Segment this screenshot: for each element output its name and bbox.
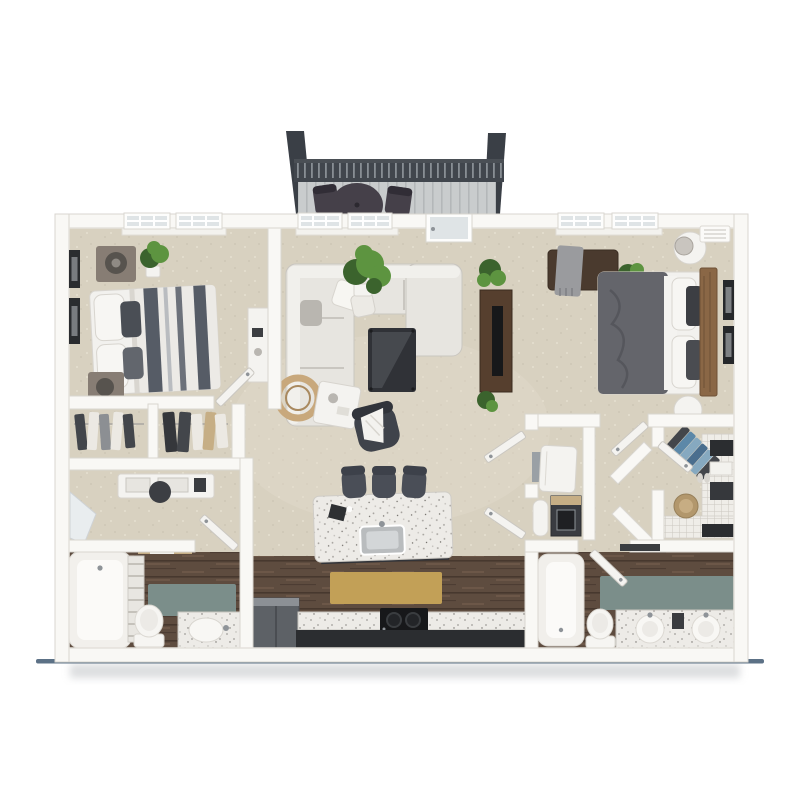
bed-dark (598, 268, 717, 396)
storage-cylinder (533, 500, 548, 536)
runner-rug (330, 572, 442, 604)
kitchen-island (313, 492, 453, 565)
folded-towels (710, 462, 732, 475)
side-table (313, 381, 362, 430)
vanity-decor (672, 613, 684, 629)
table-lamp (675, 237, 693, 255)
table-lamp (96, 378, 114, 396)
coffee-table (368, 328, 416, 392)
bathtub (69, 552, 131, 648)
bar-stool (401, 465, 427, 499)
base-cabinets (296, 630, 532, 648)
floor-plan-image (0, 0, 800, 800)
floor-plan-svg (0, 0, 800, 800)
closet-hanging-clothes (162, 412, 228, 453)
toilet (134, 605, 164, 647)
storage-box (551, 496, 581, 536)
shoes (697, 473, 703, 483)
vanity-sink (178, 612, 240, 648)
teal-rug (148, 584, 236, 616)
balcony-chair-left (312, 183, 340, 215)
media-console (480, 290, 512, 392)
storage-bin (710, 440, 734, 456)
throw-pillow (300, 300, 322, 326)
bathtub (538, 554, 584, 646)
range-cooktop (380, 608, 428, 632)
water-heater (539, 445, 577, 493)
double-vanity (616, 610, 734, 648)
ac-vent (700, 226, 730, 242)
wood-headboard (700, 268, 717, 396)
drop-shadow (70, 664, 740, 678)
refrigerator (253, 598, 299, 648)
balcony-glass-door (426, 214, 472, 242)
storage-bin (710, 482, 734, 500)
round-stool (149, 481, 171, 503)
accent-pillow (122, 347, 144, 380)
bar-stool (372, 466, 396, 498)
toilet (586, 609, 615, 648)
towel-bar (620, 544, 660, 551)
accent-pillow (120, 301, 142, 338)
bar-stool (341, 465, 367, 499)
balcony-railing (294, 163, 504, 182)
throw-blanket (554, 245, 583, 297)
